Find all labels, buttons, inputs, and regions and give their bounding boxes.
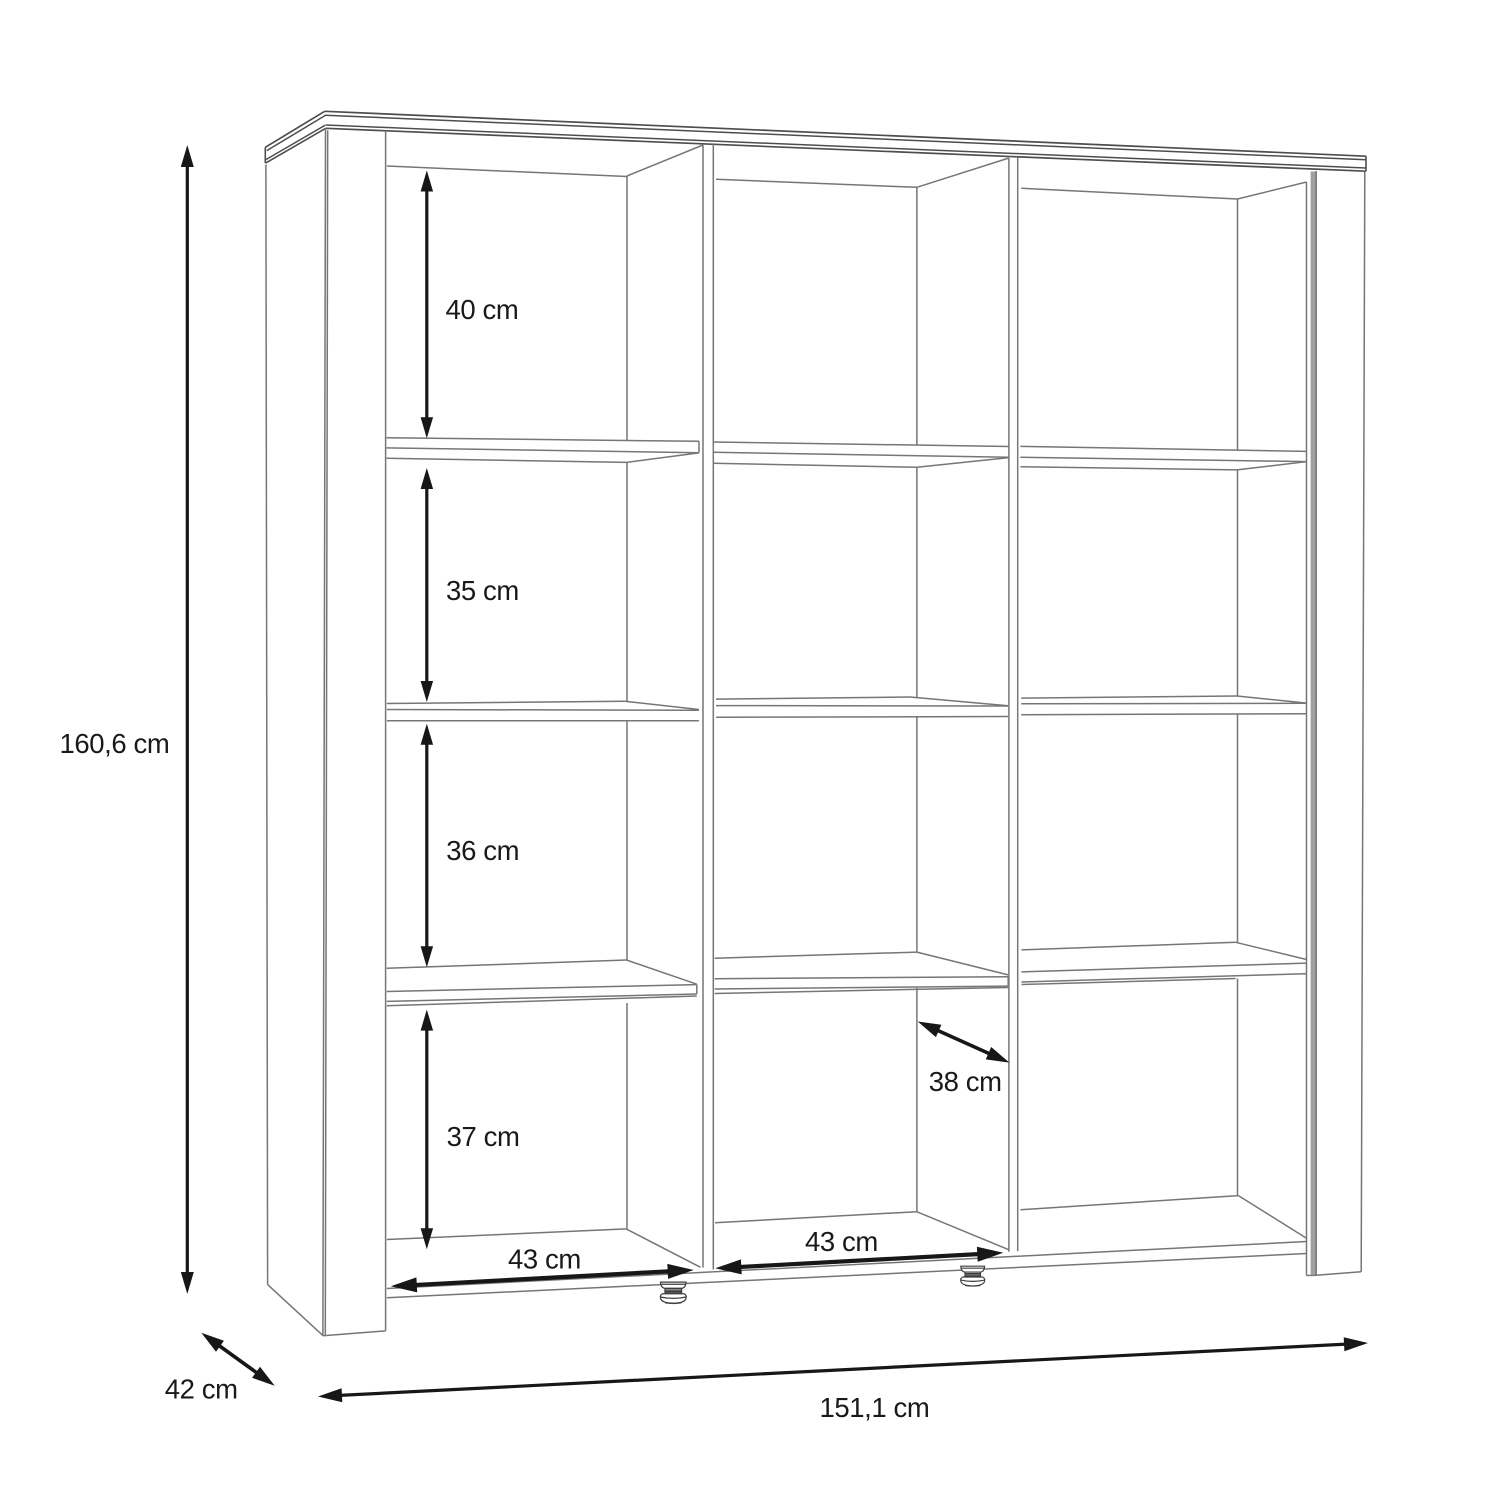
svg-text:35 cm: 35 cm — [446, 575, 519, 606]
svg-text:160,6 cm: 160,6 cm — [60, 728, 170, 759]
svg-text:43 cm: 43 cm — [805, 1226, 878, 1257]
svg-text:151,1 cm: 151,1 cm — [820, 1392, 930, 1423]
svg-text:38 cm: 38 cm — [929, 1066, 1002, 1097]
svg-text:42 cm: 42 cm — [165, 1374, 238, 1405]
svg-text:37 cm: 37 cm — [447, 1121, 520, 1152]
svg-text:36 cm: 36 cm — [446, 835, 519, 866]
svg-text:40 cm: 40 cm — [446, 294, 519, 325]
svg-text:43 cm: 43 cm — [508, 1244, 581, 1275]
